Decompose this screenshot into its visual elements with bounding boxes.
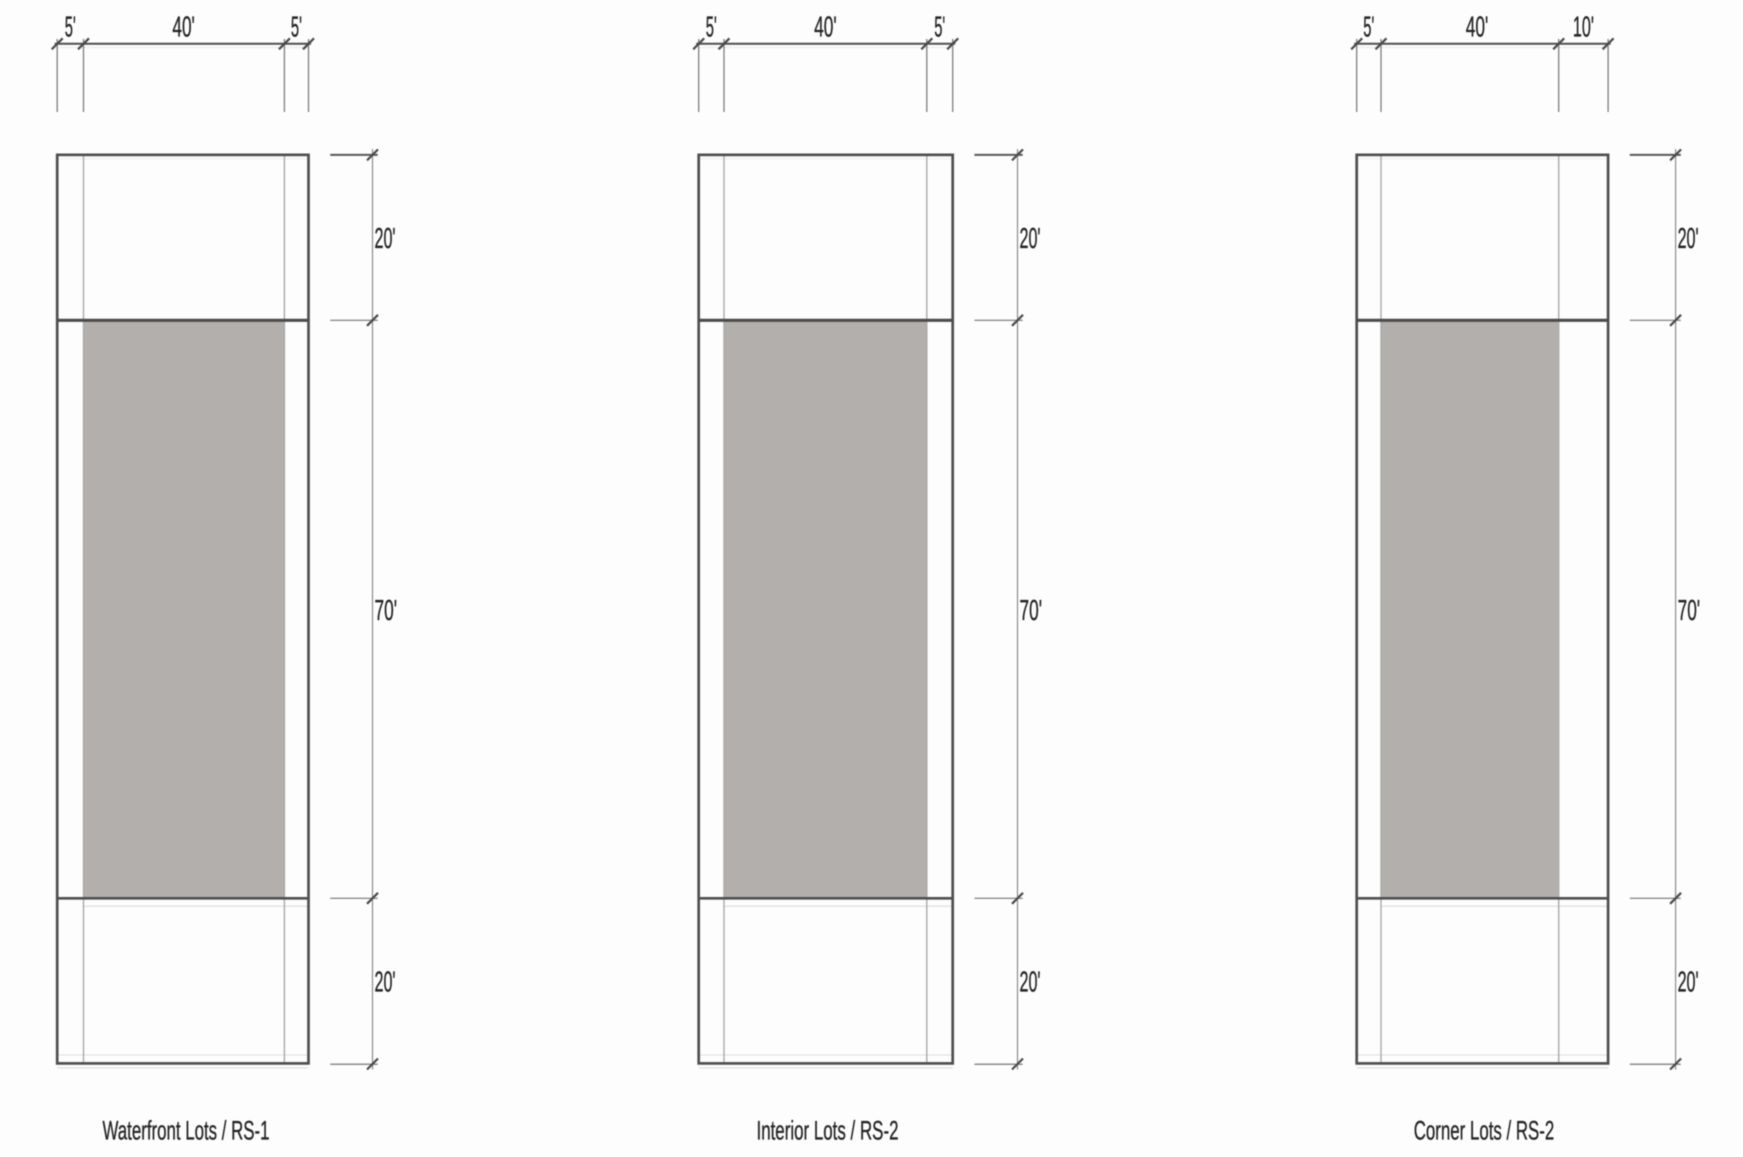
svg-text:5': 5' xyxy=(65,12,76,44)
svg-text:5': 5' xyxy=(1363,12,1374,44)
svg-text:20': 20' xyxy=(1020,966,1041,998)
svg-text:5': 5' xyxy=(934,12,945,44)
svg-text:5': 5' xyxy=(706,12,717,44)
svg-text:20': 20' xyxy=(375,966,396,998)
svg-text:20': 20' xyxy=(1678,223,1699,255)
svg-text:70': 70' xyxy=(1020,595,1043,627)
svg-text:Corner Lots / RS-2: Corner Lots / RS-2 xyxy=(1414,1116,1555,1146)
svg-text:20': 20' xyxy=(375,223,396,255)
svg-text:Interior Lots / RS-2: Interior Lots / RS-2 xyxy=(757,1116,899,1146)
svg-text:40': 40' xyxy=(1466,12,1489,44)
svg-text:Waterfront Lots / RS-1: Waterfront Lots / RS-1 xyxy=(103,1116,270,1146)
svg-text:20': 20' xyxy=(1020,223,1041,255)
svg-text:5': 5' xyxy=(291,12,302,44)
svg-text:20': 20' xyxy=(1678,966,1699,998)
svg-text:40': 40' xyxy=(172,12,195,44)
svg-text:70': 70' xyxy=(1678,595,1701,627)
svg-text:70': 70' xyxy=(375,595,398,627)
svg-text:10': 10' xyxy=(1573,12,1594,44)
svg-text:40': 40' xyxy=(814,12,837,44)
